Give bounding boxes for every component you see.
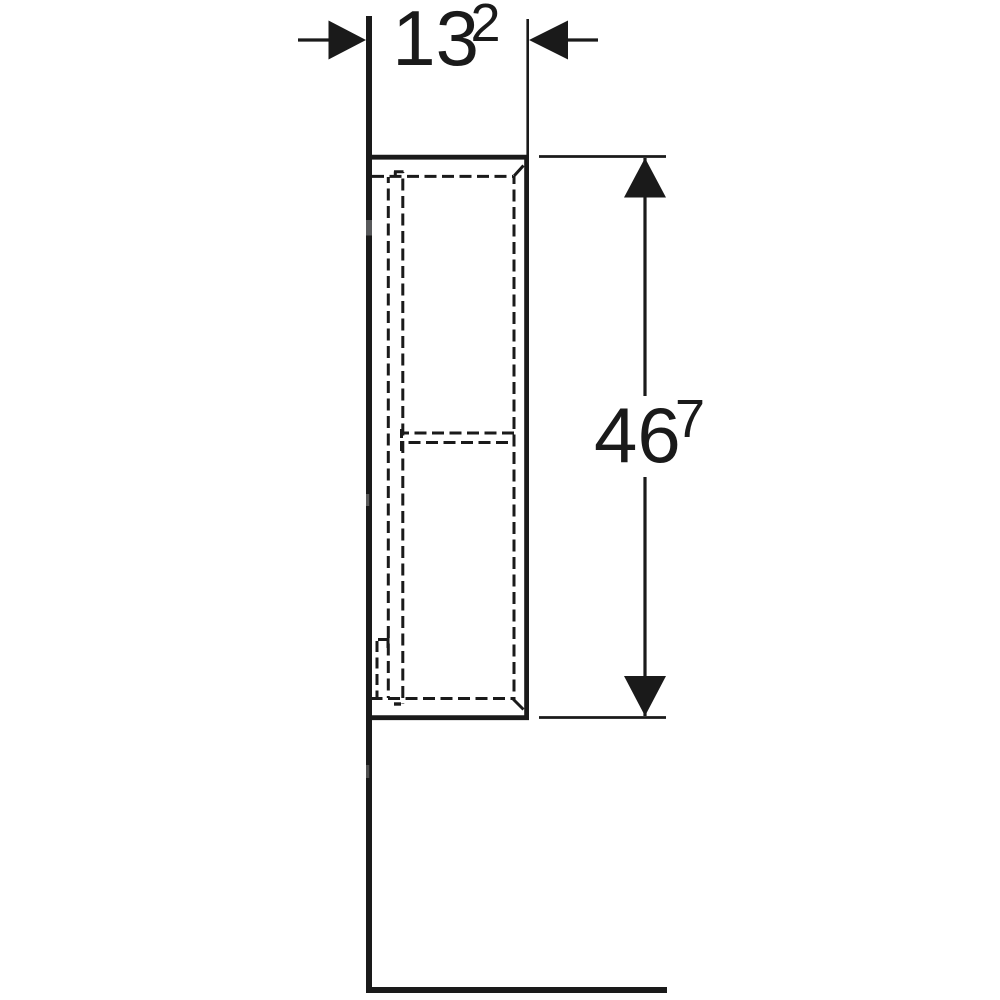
svg-text:46: 46 xyxy=(594,391,681,479)
svg-text:7: 7 xyxy=(675,389,705,449)
svg-text:13: 13 xyxy=(392,0,479,82)
svg-text:2: 2 xyxy=(471,0,501,53)
